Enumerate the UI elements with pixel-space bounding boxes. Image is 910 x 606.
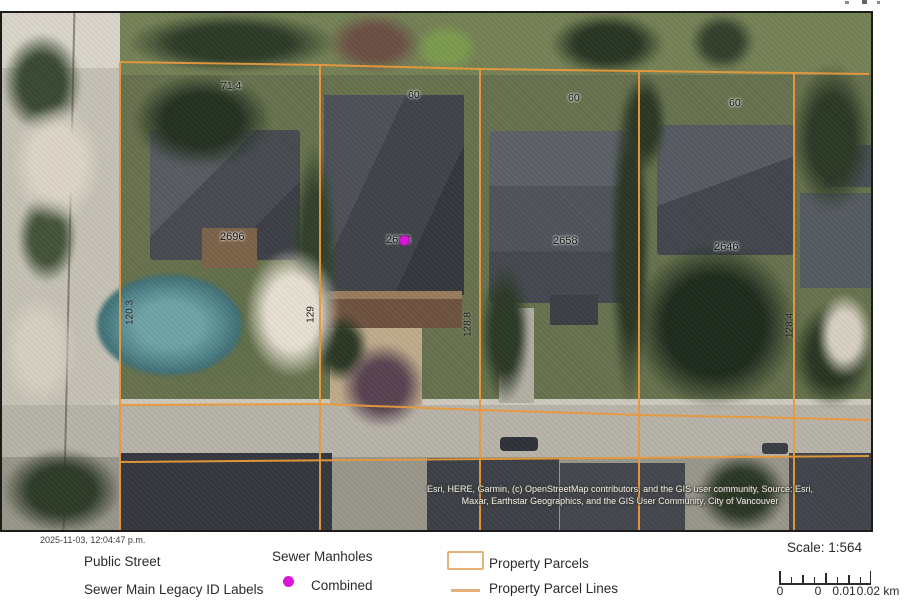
depth-dimension-label: 120.3 (125, 291, 136, 335)
scale-bar-label: 0 (815, 584, 822, 598)
depth-dimension-label: 128.4 (785, 304, 796, 348)
parcel-swatch-icon (447, 551, 484, 570)
parcel-id-label: 2696 (220, 231, 244, 243)
scale-text: Scale: 1:564 (787, 540, 862, 555)
frontage-dimension-label: 60 (568, 92, 580, 104)
depth-dimension-label: 129 (306, 293, 317, 337)
scale-bar-label: 0.01 (832, 584, 855, 598)
map-attribution: Esri, HERE, Garmin, (c) OpenStreetMap co… (374, 484, 866, 507)
attribution-line-2: Maxar, Earthstar Geographics, and the GI… (374, 496, 866, 508)
top-edge-artifact (845, 1, 849, 4)
top-edge-artifact (862, 0, 867, 4)
manhole-dot-icon (283, 576, 294, 587)
depth-dimension-label: 128.8 (463, 303, 474, 347)
frontage-dimension-label: 60 (408, 89, 420, 101)
scale-bar-label: 0 (777, 584, 784, 598)
legend-property-parcels: Property Parcels (489, 556, 589, 571)
parcel-id-label: 2658 (553, 235, 577, 247)
scale-bar (779, 571, 871, 585)
sewer-manhole-marker[interactable] (399, 235, 410, 246)
legend-sewer-manholes-header: Sewer Manholes (272, 549, 373, 564)
legend-public-street: Public Street (84, 554, 161, 569)
aerial-texture (2, 13, 871, 530)
map-canvas[interactable]: 2696 2676 2658 2646 71.4 60 60 60 120.3 … (0, 11, 873, 532)
parcel-line-swatch-icon (451, 589, 480, 592)
legend-property-parcel-lines: Property Parcel Lines (489, 581, 618, 596)
parcel-id-label: 2646 (714, 241, 738, 253)
legend-combined: Combined (311, 578, 373, 593)
top-edge-artifact (877, 1, 880, 4)
scale-bar-label: 0.02 km (857, 584, 900, 598)
legend-sewer-main-legacy: Sewer Main Legacy ID Labels (84, 582, 263, 597)
attribution-line-1: Esri, HERE, Garmin, (c) OpenStreetMap co… (374, 484, 866, 496)
frontage-dimension-label: 71.4 (221, 80, 241, 92)
export-timestamp: 2025-11-03, 12:04:47 p.m. (40, 535, 145, 545)
frontage-dimension-label: 60 (729, 97, 741, 109)
